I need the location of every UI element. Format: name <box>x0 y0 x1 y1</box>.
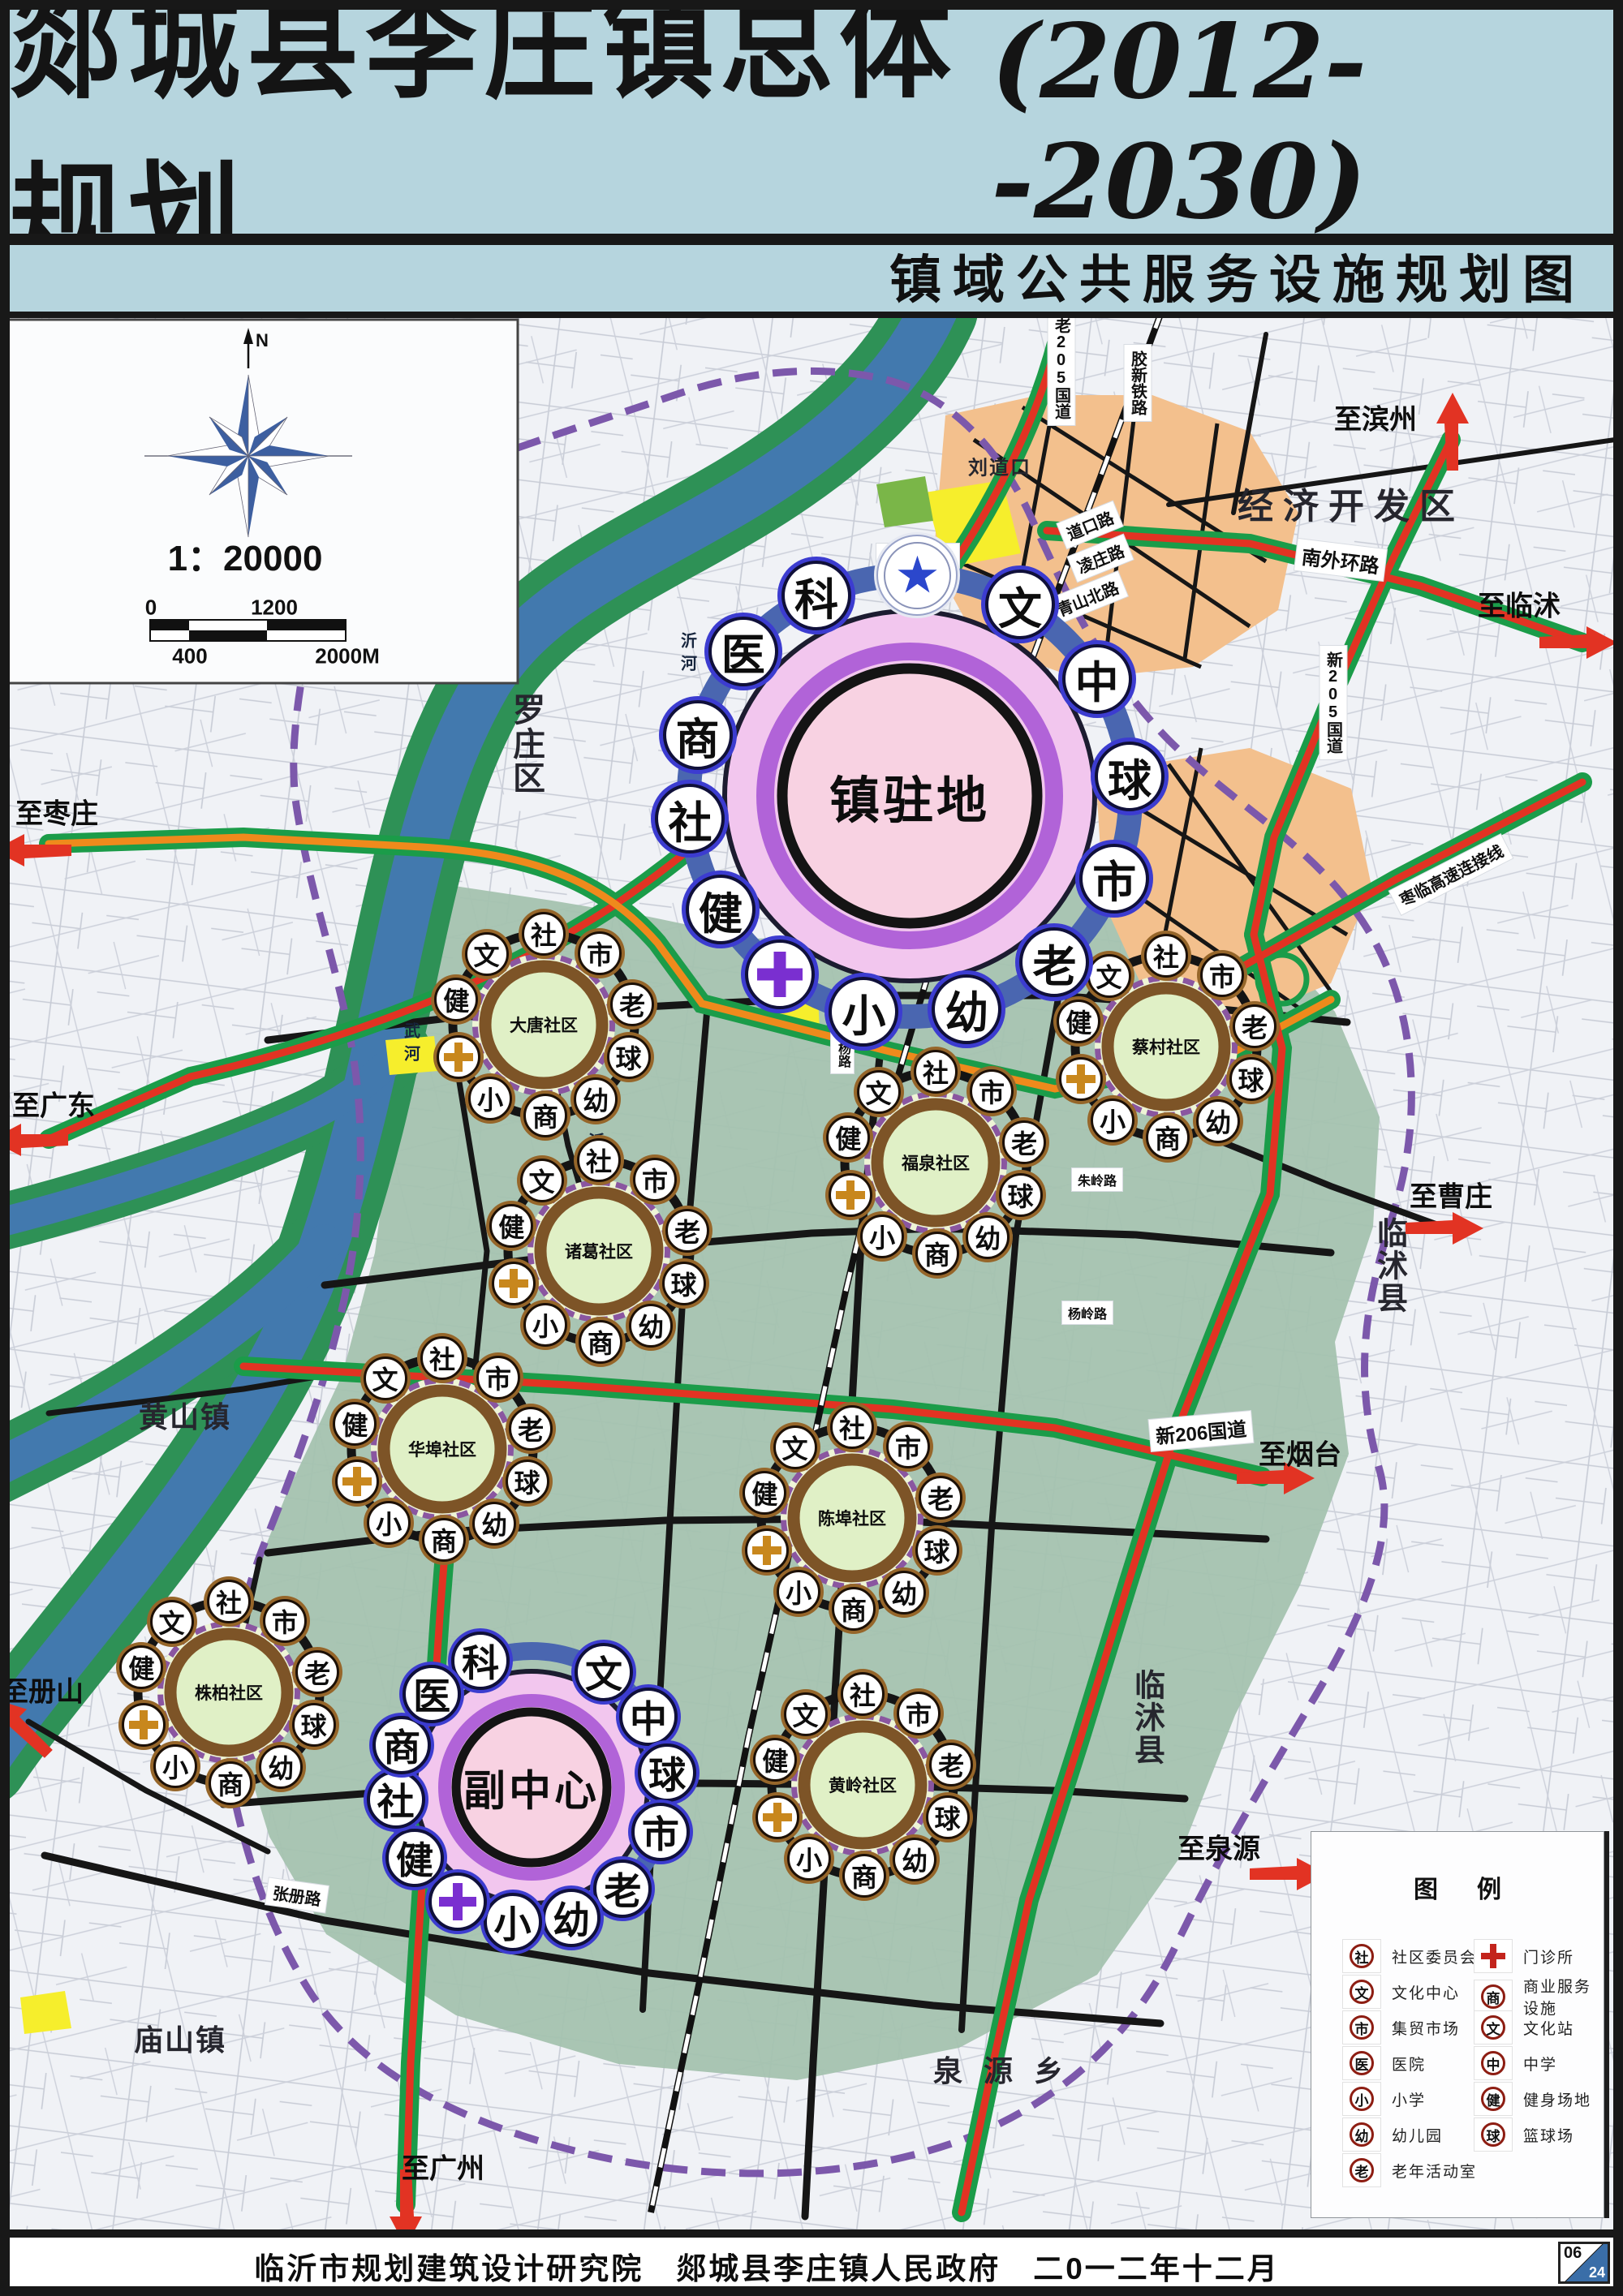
facility-commerce: 商 <box>372 1716 431 1774</box>
facility-kindergarten: 幼 <box>629 1304 673 1348</box>
legend-symbol: 球 <box>1481 2122 1505 2147</box>
road-label: 朱岭路 <box>1072 1168 1122 1191</box>
facility-culture: 文 <box>985 570 1055 639</box>
facility-hospital: 医 <box>403 1665 461 1723</box>
legend-symbol-box: 幼 <box>1342 2118 1381 2152</box>
facility-community-committee: 社 <box>1144 934 1188 978</box>
drawing-name: 镇域公共服务设施规划图 <box>889 239 1586 313</box>
facility-culture: 文 <box>784 1692 828 1736</box>
sheet-title-years: (2012--2030) <box>992 2 1613 242</box>
facility-fitness: 健 <box>489 1204 533 1248</box>
clinic-cross-icon <box>757 952 803 997</box>
legend-symbol-box: 球 <box>1474 2118 1513 2152</box>
facility-basketball: 球 <box>638 1743 696 1802</box>
facility-basketball: 球 <box>999 1173 1043 1217</box>
legend-label: 幼儿园 <box>1392 2124 1443 2146</box>
legend-label: 篮球场 <box>1523 2124 1574 2146</box>
facility-elderly-activity: 老 <box>1233 1004 1276 1048</box>
legend-label: 文化中心 <box>1392 1981 1460 2003</box>
legend-symbol-box: 医 <box>1342 2046 1381 2080</box>
facility-basketball: 球 <box>662 1262 706 1305</box>
subtitle-bar: 镇域公共服务设施规划图 <box>10 234 1613 318</box>
clinic-cross-icon <box>129 1710 158 1739</box>
legend-item: 球篮球场 <box>1474 2118 1574 2152</box>
legend-label: 小学 <box>1392 2088 1426 2110</box>
legend-item: 老老年活动室 <box>1342 2153 1477 2187</box>
facility-primary-school: 小 <box>777 1570 820 1614</box>
facility-clinic-cross-icon <box>1059 1057 1103 1101</box>
facility-elderly-activity: 老 <box>593 1860 652 1918</box>
river-label: 沂河 <box>676 632 700 677</box>
legend-symbol-box <box>1474 1939 1513 1973</box>
facility-market: 市 <box>970 1069 1014 1113</box>
facility-fitness: 健 <box>333 1402 377 1446</box>
legend-symbol-box: 社 <box>1342 1939 1381 1973</box>
facility-culture: 文 <box>364 1357 407 1400</box>
region-label: 临沭县 <box>1125 1669 1169 1766</box>
facility-clinic-cross-icon <box>745 939 815 1009</box>
sub-center-label: 副中心 <box>463 1757 600 1818</box>
star-icon: ★ <box>884 542 951 609</box>
compass-box <box>3 320 518 683</box>
facility-clinic-cross-icon <box>745 1529 789 1572</box>
facility-primary-school: 小 <box>468 1077 512 1120</box>
facility-community-committee: 社 <box>207 1580 251 1623</box>
legend-symbol: 社 <box>1350 1944 1374 1968</box>
arrow-label: 至烟台 <box>1259 1433 1341 1473</box>
facility-town-star-icon: ★ <box>876 535 958 616</box>
legend-symbol-box: 文 <box>1342 1975 1381 2009</box>
arrow-label: 至广东 <box>12 1084 95 1124</box>
legend-item: 中中学 <box>1474 2046 1557 2080</box>
facility-kindergarten: 幼 <box>966 1215 1010 1259</box>
legend-title: 图例 <box>1414 1869 1540 1905</box>
facility-community-committee: 社 <box>655 784 725 853</box>
facility-kindergarten: 幼 <box>542 1889 601 1947</box>
arrow-label: 至册山 <box>1 1670 84 1709</box>
facility-fitness: 健 <box>434 978 478 1021</box>
direction-arrow <box>1406 1210 1483 1246</box>
legend-symbol-box: 小 <box>1342 2082 1381 2116</box>
facility-culture: 文 <box>857 1070 901 1114</box>
cross-bar <box>1077 1064 1085 1094</box>
cross-bar <box>763 1536 771 1565</box>
north-label: N <box>256 330 269 351</box>
facility-elderly-activity: 老 <box>295 1650 339 1694</box>
community-label: 黄岭社区 <box>829 1773 897 1797</box>
legend-item: 健健身场地 <box>1474 2082 1591 2116</box>
facility-kindergarten: 幼 <box>574 1077 618 1121</box>
facility-fitness: 健 <box>686 875 756 944</box>
region-label: 泉源乡 <box>933 2048 1084 2090</box>
arrow-label: 至曹庄 <box>1410 1175 1492 1215</box>
facility-fitness: 健 <box>1057 1000 1100 1043</box>
facility-community-committee: 社 <box>577 1138 621 1182</box>
legend-symbol: 健 <box>1481 2087 1505 2111</box>
facility-kindergarten: 幼 <box>1196 1099 1240 1143</box>
facility-kindergarten: 幼 <box>882 1571 926 1615</box>
legend-symbol: 文 <box>1350 1980 1374 2004</box>
facility-elderly-activity: 老 <box>665 1209 709 1253</box>
town-seat-label: 镇驻地 <box>829 759 990 832</box>
legend-box: 图例 社社区委员会文文化中心市集贸市场医医院小小学幼幼儿园老老年活动室门诊所商商… <box>1311 1831 1604 2218</box>
community-label: 蔡村社区 <box>1132 1034 1200 1059</box>
facility-fitness: 健 <box>753 1738 797 1782</box>
facility-elderly-activity: 老 <box>610 982 654 1026</box>
facility-community-committee: 社 <box>367 1770 425 1829</box>
facility-elderly-activity: 老 <box>929 1743 973 1786</box>
facility-primary-school: 小 <box>367 1501 411 1545</box>
legend-symbol-box: 老 <box>1342 2153 1381 2187</box>
facility-middle-school: 中 <box>619 1688 678 1746</box>
facility-market: 市 <box>631 1803 690 1861</box>
legend-symbol: 幼 <box>1350 2122 1374 2147</box>
facility-commerce: 商 <box>842 1854 886 1898</box>
clinic-cross-icon <box>1481 1944 1505 1968</box>
footer-bar: 临沂市规划建筑设计研究院 郯城县李庄镇人民政府 二0一二年十二月 06 24 <box>10 2229 1613 2286</box>
facility-basketball: 球 <box>607 1035 651 1079</box>
legend-symbol: 文 <box>1481 2015 1505 2040</box>
legend-symbol: 中 <box>1481 2051 1505 2075</box>
facility-fitness: 健 <box>743 1471 786 1515</box>
legend-item: 门诊所 <box>1474 1939 1574 1973</box>
community-label: 华埠社区 <box>408 1437 476 1461</box>
facility-commerce: 商 <box>523 1094 567 1137</box>
facility-fitness: 健 <box>119 1645 163 1689</box>
scale-tick: 400 <box>172 644 207 669</box>
cross-bar <box>846 1180 855 1210</box>
legend-label: 中学 <box>1523 2053 1557 2075</box>
river-label: 武河 <box>399 1022 423 1068</box>
facility-science: 科 <box>781 561 851 630</box>
facility-basketball: 球 <box>1229 1057 1273 1101</box>
legend-label: 集贸市场 <box>1392 2017 1460 2039</box>
legend-symbol-box: 文 <box>1474 2010 1513 2044</box>
arrow-label: 至滨州 <box>1334 398 1417 437</box>
direction-arrow <box>1435 393 1470 471</box>
road-label: 老205国道 <box>1048 318 1075 425</box>
arrow-label: 至临沭 <box>1478 584 1561 624</box>
facility-hospital: 医 <box>708 617 778 686</box>
legend-symbol: 医 <box>1350 2051 1374 2075</box>
clinic-cross-icon <box>342 1467 372 1496</box>
region-label: 庙山镇 <box>134 2017 226 2059</box>
community-label: 株柏社区 <box>195 1680 263 1705</box>
facility-kindergarten: 幼 <box>893 1838 936 1881</box>
legend-label: 老年活动室 <box>1392 2160 1477 2182</box>
facility-middle-school: 中 <box>1062 644 1132 714</box>
clinic-cross-icon <box>752 1536 781 1565</box>
facility-commerce: 商 <box>663 700 733 770</box>
legend-symbol: 老 <box>1350 2158 1374 2182</box>
legend-label: 社区委员会 <box>1392 1946 1477 1967</box>
facility-market: 市 <box>263 1599 307 1643</box>
facility-market: 市 <box>897 1692 941 1735</box>
clinic-cross-icon <box>1066 1064 1096 1094</box>
legend-item: 幼幼儿园 <box>1342 2118 1443 2152</box>
facility-kindergarten: 幼 <box>932 974 1001 1044</box>
facility-kindergarten: 幼 <box>259 1745 303 1789</box>
facility-kindergarten: 幼 <box>472 1502 516 1546</box>
facility-clinic-cross-icon <box>437 1035 480 1079</box>
facility-culture: 文 <box>520 1159 564 1202</box>
cross-bar <box>453 1883 463 1920</box>
facility-culture: 文 <box>1087 954 1131 998</box>
facility-culture: 文 <box>773 1425 817 1469</box>
cross-bar <box>140 1710 148 1739</box>
legend-symbol-box: 健 <box>1474 2082 1513 2116</box>
facility-science: 科 <box>451 1632 510 1690</box>
facility-basketball: 球 <box>926 1795 970 1839</box>
legend-label: 门诊所 <box>1523 1946 1574 1967</box>
facility-primary-school: 小 <box>523 1303 567 1347</box>
facility-basketball: 球 <box>915 1529 959 1572</box>
facility-commerce: 商 <box>832 1587 876 1631</box>
plan-sheet: 郯城县李庄镇总体规划 (2012--2030) 镇域公共服务设施规划图 <box>0 0 1623 2296</box>
legend-label: 文化站 <box>1523 2017 1574 2039</box>
clinic-cross-icon <box>439 1883 476 1920</box>
cross-bar <box>773 1803 781 1832</box>
facility-elderly-activity: 老 <box>1019 927 1089 997</box>
direction-arrow <box>0 832 71 868</box>
facility-fitness: 健 <box>826 1116 870 1159</box>
scale-tick: 2000M <box>315 644 380 669</box>
legend-symbol-box: 市 <box>1342 2010 1381 2044</box>
facility-commerce: 商 <box>579 1320 622 1364</box>
title-bar: 郯城县李庄镇总体规划 (2012--2030) <box>10 10 1613 234</box>
facility-market: 市 <box>633 1158 677 1202</box>
legend-item: 社社区委员会 <box>1342 1939 1477 1973</box>
arrow-label: 至泉源 <box>1177 1827 1260 1867</box>
page-number-box: 06 24 <box>1558 2242 1610 2284</box>
clinic-cross-icon <box>763 1803 792 1832</box>
facility-primary-school: 小 <box>484 1893 542 1951</box>
facility-market: 市 <box>1079 844 1149 914</box>
facility-market: 市 <box>886 1425 930 1468</box>
scale-bar <box>150 620 346 641</box>
facility-market: 市 <box>1200 953 1244 997</box>
facility-fitness: 健 <box>385 1829 444 1887</box>
road-label: 胶新铁路 <box>1125 345 1152 421</box>
facility-elderly-activity: 老 <box>1002 1120 1046 1164</box>
clinic-cross-icon <box>836 1180 865 1210</box>
facility-community-committee: 社 <box>914 1050 958 1094</box>
facility-commerce: 商 <box>209 1761 252 1805</box>
legend-item: 医医院 <box>1342 2046 1426 2080</box>
legend-item: 小小学 <box>1342 2082 1426 2116</box>
facility-commerce: 商 <box>1146 1116 1190 1159</box>
facility-clinic-cross-icon <box>829 1173 872 1217</box>
region-label: 罗庄区 <box>502 693 549 795</box>
community-label: 诸葛社区 <box>565 1239 633 1263</box>
facility-culture: 文 <box>575 1643 633 1701</box>
facility-culture: 文 <box>150 1600 194 1644</box>
facility-community-committee: 社 <box>420 1336 464 1380</box>
facility-primary-school: 小 <box>153 1744 197 1788</box>
arrow-label: 至广州 <box>402 2147 484 2186</box>
region-label: 黄山镇 <box>139 1394 231 1436</box>
region-label: 刘道口 <box>968 452 1031 480</box>
community-label: 陈埠社区 <box>818 1506 886 1530</box>
legend-symbol: 商 <box>1481 1984 1505 2009</box>
cross-bar <box>1490 1944 1496 1968</box>
arrow-label: 至枣庄 <box>15 792 98 832</box>
cross-bar <box>353 1467 361 1496</box>
facility-clinic-cross-icon <box>756 1795 799 1839</box>
facility-community-committee: 社 <box>522 912 566 956</box>
facility-primary-school: 小 <box>1091 1099 1134 1142</box>
legend-item: 文文化中心 <box>1342 1975 1460 2009</box>
clinic-cross-icon <box>499 1269 528 1298</box>
scale-ratio: 1：20000 <box>168 529 323 581</box>
road-label: 新205国道 <box>1320 646 1347 759</box>
facility-clinic-cross-icon <box>492 1262 536 1305</box>
facility-culture: 文 <box>465 932 509 976</box>
facility-elderly-activity: 老 <box>919 1476 962 1520</box>
legend-item: 文文化站 <box>1474 2010 1574 2044</box>
community-label: 大唐社区 <box>510 1013 578 1037</box>
cross-bar <box>510 1269 518 1298</box>
facility-clinic-cross-icon <box>335 1460 379 1503</box>
facility-clinic-cross-icon <box>428 1872 487 1931</box>
facility-basketball: 球 <box>506 1460 549 1503</box>
facility-basketball: 球 <box>1095 742 1165 811</box>
map-area: 经济开发区罗庄区黄山镇临沭县临沭县庙山镇泉源乡刘道口道口路凌庄路青山北路南外环路… <box>0 318 1623 2238</box>
community-label: 福泉社区 <box>902 1150 970 1175</box>
cross-bar <box>774 952 786 997</box>
facility-elderly-activity: 老 <box>509 1407 553 1451</box>
facility-market: 市 <box>578 931 622 975</box>
region-label: 经济开发区 <box>1238 477 1465 529</box>
legend-symbol: 小 <box>1350 2087 1374 2111</box>
facility-basketball: 球 <box>292 1703 336 1747</box>
facility-primary-school: 小 <box>860 1215 904 1258</box>
facility-market: 市 <box>476 1356 520 1400</box>
direction-arrow <box>0 1122 68 1158</box>
facility-clinic-cross-icon <box>122 1703 166 1747</box>
road-label: 杨岭路 <box>1062 1301 1113 1324</box>
legend-label: 健身场地 <box>1523 2088 1591 2110</box>
legend-item: 市集贸市场 <box>1342 2010 1460 2044</box>
legend-symbol-box: 商 <box>1474 1980 1513 2014</box>
facility-community-committee: 社 <box>841 1672 885 1716</box>
cross-bar <box>454 1043 463 1072</box>
facility-community-committee: 社 <box>830 1405 874 1449</box>
legend-symbol: 市 <box>1350 2015 1374 2040</box>
scale-tick: 1200 <box>251 595 298 621</box>
page-total: 24 <box>1589 2264 1605 2281</box>
scale-tick: 0 <box>145 595 157 621</box>
facility-commerce: 商 <box>422 1518 466 1562</box>
facility-commerce: 商 <box>915 1232 959 1275</box>
facility-primary-school: 小 <box>829 977 898 1047</box>
page-number: 06 <box>1564 2244 1582 2263</box>
direction-arrow <box>1539 625 1617 660</box>
facility-primary-school: 小 <box>787 1837 831 1881</box>
legend-label: 医院 <box>1392 2053 1426 2075</box>
footer-credits: 临沂市规划建筑设计研究院 郯城县李庄镇人民政府 二0一二年十二月 <box>10 2244 1524 2288</box>
legend-symbol-box: 中 <box>1474 2046 1513 2080</box>
clinic-cross-icon <box>444 1043 473 1072</box>
